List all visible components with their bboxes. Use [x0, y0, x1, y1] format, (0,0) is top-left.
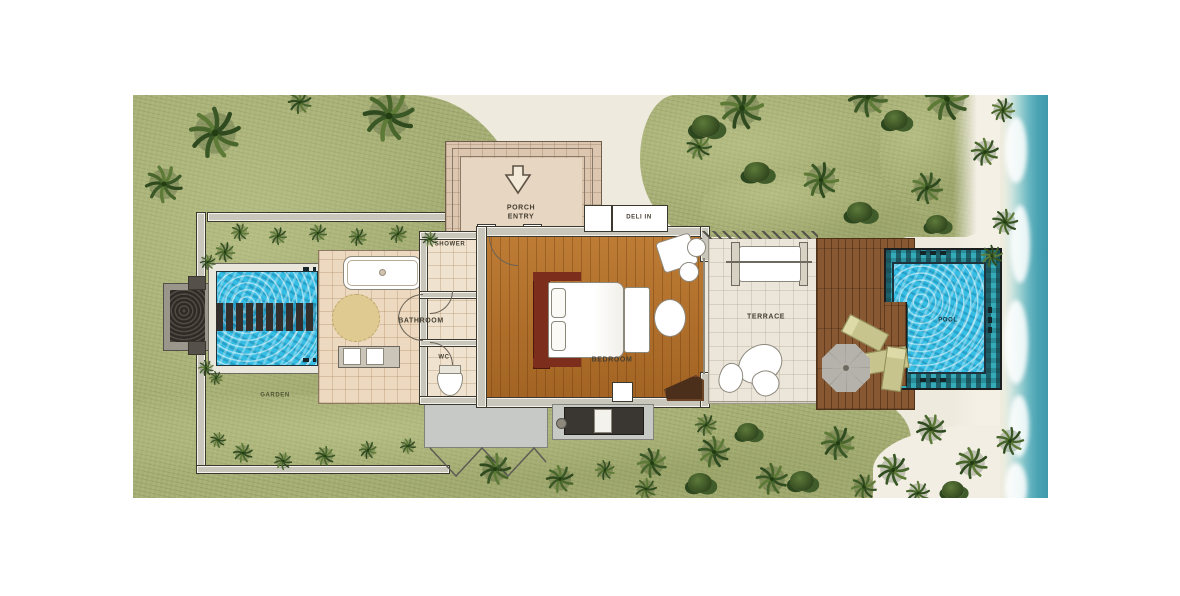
parasol-center	[843, 365, 849, 371]
room-label-bathroom: BATHROOM	[398, 318, 444, 327]
lap-pool-stepping-stones	[216, 303, 316, 331]
bed-platform-bottom	[533, 358, 581, 367]
kettle	[556, 418, 567, 429]
bedroom-side-table	[612, 382, 633, 402]
ottoman	[679, 262, 699, 282]
room-label-shower: SHOWER	[435, 241, 466, 249]
surf-foam	[1005, 117, 1027, 183]
sink	[343, 348, 361, 365]
wall-shower-north	[419, 231, 481, 240]
garden-wall-north	[207, 212, 449, 222]
lap-pool-marker	[303, 267, 316, 271]
room-label-bedroom: BEDROOM	[592, 357, 633, 366]
service-pad-steps	[428, 446, 548, 480]
ottoman	[687, 238, 706, 257]
pool-marker	[988, 303, 992, 333]
toilet-tank	[439, 365, 461, 374]
entry-arrow-icon	[504, 164, 532, 196]
pool-marker	[920, 378, 948, 382]
pillow	[551, 288, 566, 318]
room-label-pool: POOL	[938, 317, 957, 325]
water-feature-post	[188, 341, 206, 355]
bedroom-rug-oval	[654, 299, 686, 337]
console-sheet	[594, 409, 612, 433]
terrace-roof-hatch	[700, 231, 818, 239]
room-label-deli-in: DELI IN	[626, 214, 652, 222]
bedroom-glass-east	[703, 258, 705, 374]
water-feature-basin	[170, 290, 205, 342]
bed-bench	[624, 287, 650, 353]
niche-box	[584, 205, 612, 232]
wall-wc-north	[419, 339, 481, 347]
bathtub-drain	[379, 269, 386, 276]
daybed-mattress	[739, 246, 801, 282]
room-label-porch-entry: PORCH ENTRY	[507, 204, 535, 222]
lap-pool-marker	[303, 358, 316, 362]
room-label-wc: WC	[438, 354, 449, 362]
room-label-terrace: TERRACE	[747, 314, 785, 323]
garden-wall-south	[196, 465, 450, 474]
floorplan-canvas: DELI IN PORCH ENTRY SHOWER BATHROOM WC B…	[0, 0, 1180, 596]
surf-foam	[1004, 300, 1028, 384]
room-label-garden: GARDEN	[260, 392, 290, 400]
daybed-beam	[726, 261, 812, 263]
pillow	[551, 321, 566, 351]
villa-site-plan: DELI IN PORCH ENTRY SHOWER BATHROOM WC B…	[133, 95, 1048, 498]
bathroom-rug	[332, 294, 380, 342]
bedroom-wall-west	[476, 226, 487, 408]
sink	[366, 348, 384, 365]
wall-wc-south	[419, 396, 481, 405]
surf-foam	[1009, 395, 1029, 457]
water-feature-post	[188, 276, 206, 290]
terrace-edge	[708, 401, 818, 402]
bed-platform-top	[533, 272, 581, 281]
surf-foam	[1010, 205, 1030, 283]
pool-marker	[920, 251, 948, 255]
